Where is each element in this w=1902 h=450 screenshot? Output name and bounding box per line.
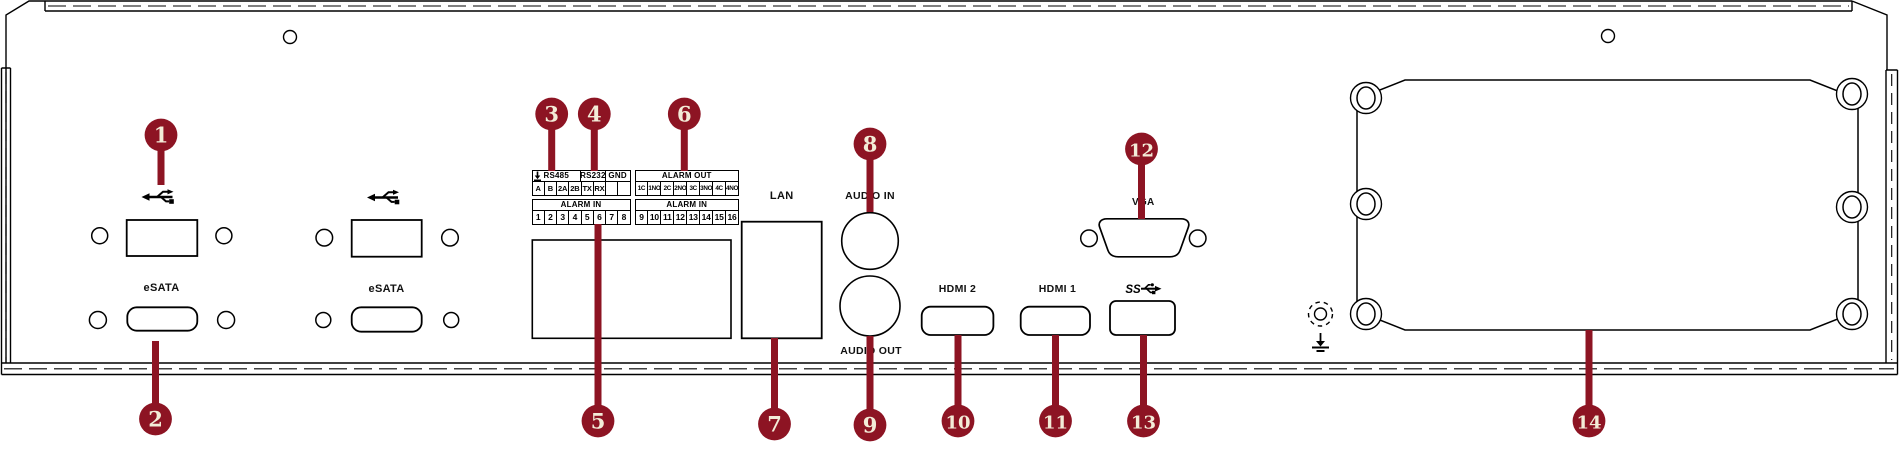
pin-2b: 2B: [568, 182, 580, 194]
pin-3c: 3C: [686, 182, 699, 194]
hdmi-2-label: HDMI 2: [939, 284, 976, 295]
pin-rx: RX: [593, 182, 605, 194]
pin-2: 2: [544, 211, 556, 223]
alarm-in-header: ALARM IN: [533, 200, 630, 211]
pin-a: A: [533, 182, 544, 194]
audio-in-label: AUDIO IN: [845, 191, 895, 202]
pin-b: B: [544, 182, 556, 194]
pin-tx: TX: [581, 182, 593, 194]
esata-label-1: eSATA: [144, 283, 180, 294]
pin-13: 13: [686, 211, 699, 223]
pin-9: 9: [636, 211, 648, 223]
alarm-in-block-2: ALARM IN 9 10 11 12 13 14 15 16: [635, 199, 740, 225]
pin-1c: 1C: [636, 182, 648, 194]
pin-2a: 2A: [556, 182, 568, 194]
alarm-in-header: ALARM IN: [636, 200, 739, 211]
earth-ground-icon: [605, 182, 617, 194]
pin-5: 5: [581, 211, 593, 223]
alarm-out-block: ALARM OUT 1C 1NO 2C 2NO 3C 3NO 4C 4NO: [635, 170, 740, 196]
pin-4: 4: [568, 211, 580, 223]
hdmi-1-label: HDMI 1: [1039, 284, 1076, 295]
pin-12: 12: [673, 211, 686, 223]
pin-4c: 4C: [712, 182, 725, 194]
rear-panel-diagram: SS: [0, 0, 1902, 450]
earth-ground-icon: [617, 182, 629, 194]
pin-11: 11: [660, 211, 673, 223]
gnd-header: GND: [605, 171, 630, 182]
lan-label: LAN: [770, 191, 794, 202]
alarm-out-header: ALARM OUT: [636, 171, 739, 182]
pin-1no: 1NO: [647, 182, 660, 194]
pin-3: 3: [556, 211, 568, 223]
pin-15: 15: [712, 211, 725, 223]
alarm-in-block-1: ALARM IN 1 2 3 4 5 6 7 8: [532, 199, 631, 225]
labels-layer: eSATA eSATA LAN AUDIO IN AUDIO OUT HDMI …: [0, 0, 1902, 450]
rs232-header: RS232: [580, 171, 605, 182]
serial-terminal-block: RS485 RS232 GND A B 2A 2B TX RX: [532, 170, 631, 196]
pin-4no: 4NO: [725, 182, 738, 194]
pin-3no: 3NO: [699, 182, 712, 194]
pin-6: 6: [593, 211, 605, 223]
pin-14: 14: [699, 211, 712, 223]
pin-7: 7: [605, 211, 617, 223]
pin-8: 8: [617, 211, 629, 223]
audio-out-label: AUDIO OUT: [840, 346, 902, 357]
pin-2c: 2C: [660, 182, 673, 194]
pin-16: 16: [725, 211, 738, 223]
vga-label: VGA: [1132, 197, 1155, 208]
pin-10: 10: [647, 211, 660, 223]
pin-1: 1: [533, 211, 544, 223]
pin-2no: 2NO: [673, 182, 686, 194]
esata-label-2: eSATA: [369, 284, 405, 295]
